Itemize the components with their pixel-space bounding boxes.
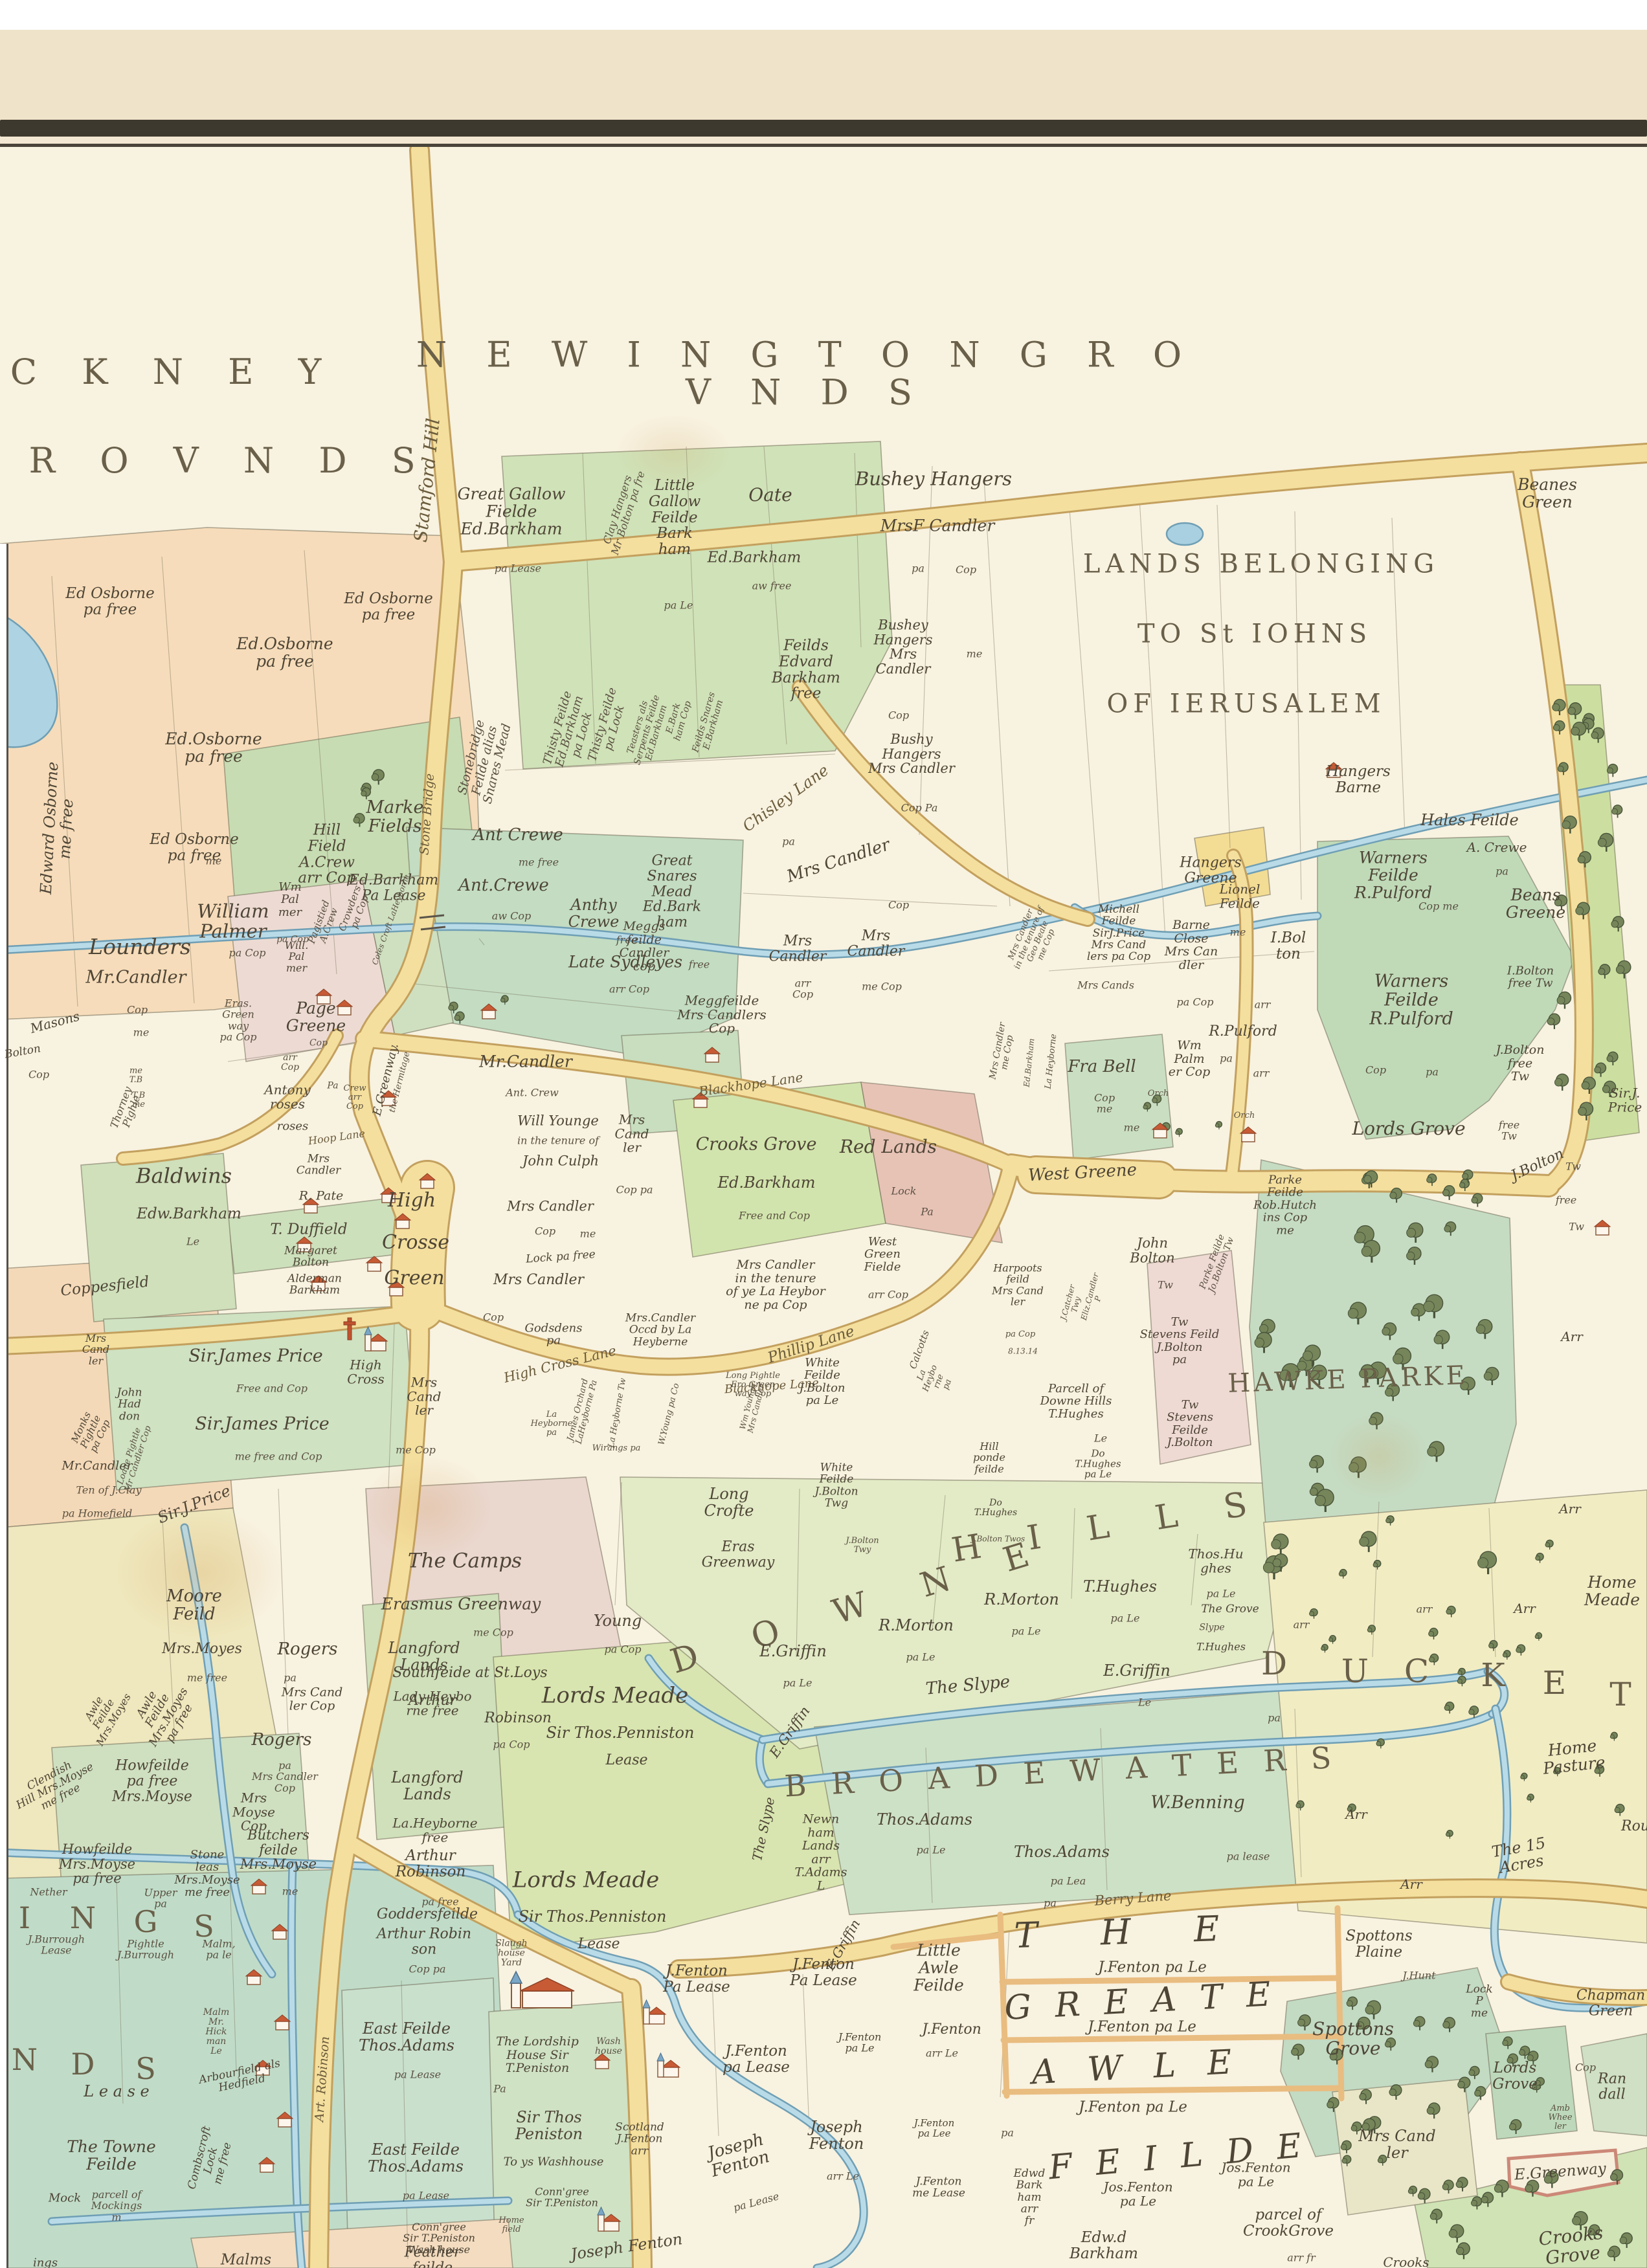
map-label: Little Gallow Feilde Bark ham [649, 478, 700, 558]
map-label: Tw Stevens Feilde J.Bolton [1167, 1399, 1213, 1449]
map-label: E.Griffin [767, 1704, 813, 1760]
label-hackney-grounds: A C K N E Y [0, 353, 338, 391]
label-newington-grounds: N E W I N G T O N G R O V N D S [386, 337, 1227, 412]
map-label: J.Fenton pa Le [1088, 2019, 1196, 2036]
map-label: Cop pa [409, 1963, 446, 1974]
map-label: pa free [421, 1896, 458, 1907]
map-label: pa Lease [403, 2190, 449, 2201]
map-label: Thisty Feilde Ed.Barkham pa Lock [541, 689, 598, 773]
map-label: East Feilde Thos.Adams [368, 2142, 464, 2175]
map-label: J.Fenton pa Lee [914, 2118, 954, 2139]
map-label: the Hermitage [388, 1051, 412, 1114]
map-label: Edw.Barkham [137, 1206, 241, 1223]
map-label: in the tenure of [517, 1135, 599, 1146]
map-label: Feilds Snares E.Barkham [691, 691, 726, 757]
map-label: Lease [577, 1937, 620, 1952]
map-label: E [1543, 1665, 1567, 1700]
map-label: Bushy Hangers Mrs Candler [868, 732, 955, 776]
map-label: Meggs feilde Candler cop [620, 920, 669, 973]
map-label: Warners Feilde R.Pulford [1369, 972, 1453, 1028]
map-label: pa Le [783, 1677, 812, 1688]
map-label: Mrs Candler [297, 1153, 341, 1177]
map-label: Marke Fields [366, 798, 424, 836]
map-label: Southfeide at St.Loys [392, 1665, 547, 1681]
map-label: arr Cop [792, 978, 813, 1001]
map-label: Cop [1365, 1064, 1386, 1075]
map-label: pa Lease [732, 2190, 780, 2213]
map-label: La Heyborne pa [531, 1410, 573, 1438]
map-label: me Cop [473, 1627, 513, 1638]
map-label: High Cross Lane [502, 1343, 618, 1385]
map-label: pa [1001, 2127, 1014, 2138]
map-label: Mr.Candler [62, 1460, 132, 1473]
map-label: Awle Feilde Mrs.Moyes [74, 1680, 133, 1748]
map-label: Arr [1400, 1878, 1422, 1892]
map-label: aw Cop [492, 910, 531, 921]
map-label: Mr.Candler [85, 968, 186, 986]
map-label: R.Morton [984, 1592, 1059, 1608]
label-the-camps: The Camps [408, 1550, 522, 1572]
map-label: Eras Greenway [702, 1539, 775, 1570]
map-label: Clendish Hill Mrs.Moyse me free [9, 1751, 102, 1823]
map-label: Eras. Green way pa Cop [220, 997, 257, 1042]
map-label: Ed.Osborne pa free [236, 635, 333, 670]
map-label: Arr [1514, 1602, 1536, 1616]
map-label: Le [186, 1236, 199, 1247]
map-label: Monks Pightle pa Cop [69, 1409, 113, 1454]
map-label: free [616, 934, 638, 945]
map-label: Blackhope Lane [724, 1377, 820, 1396]
map-label: Thos.Adams [877, 1812, 972, 1829]
map-label: Margaret Bolton [284, 1245, 337, 1269]
label-stamford-hill: Stamford Hill [411, 417, 443, 543]
map-label: Spottons Plaine [1345, 1928, 1412, 1961]
map-label: Howfeilde Mrs.Moyse pa free [59, 1842, 135, 1886]
map-label: R. Pate [299, 1190, 344, 1203]
map-label: Great Gallow Fielde Ed.Barkham [458, 485, 566, 538]
map-label: Lock [891, 1185, 917, 1196]
map-label: Malms [221, 2252, 271, 2268]
map-label: Joseph Fenton [704, 2130, 771, 2181]
map-label: arr [1417, 1603, 1433, 1614]
map-label: Great Snares Mead Ed.Bark ham [643, 854, 701, 931]
map-label: Young [594, 1613, 642, 1630]
map-label: High Cross [347, 1358, 384, 1386]
map-label: T.Hughes [1196, 1641, 1246, 1652]
map-label: Chapman Green [1576, 1988, 1645, 2019]
map-label: Do T.Hughes pa Le [1075, 1449, 1121, 1480]
map-labels-layer: A C K N E YG R O V N D SN E W I N G T O … [0, 0, 1647, 2268]
label-berry-lane: Berry Lane [1094, 1889, 1172, 1909]
map-label: The Towne Feilde [67, 2138, 156, 2173]
map-label: pa Lease [495, 562, 541, 573]
map-label: Combscroft Lock me free [186, 2125, 236, 2196]
map-label: Jos.Fenton pa Le [1103, 2180, 1172, 2208]
map-label: Conn'gree Sir T.Peniston [526, 2186, 598, 2209]
map-label: J.Bolton Twos [972, 1535, 1025, 1544]
label-the-greate-awle-feilde: T H E [1014, 1909, 1246, 1955]
map-label: Beanes Green [1518, 476, 1577, 511]
map-label: Blackhope Lane [698, 1071, 804, 1099]
map-label: La Heybo rne pa [913, 1361, 956, 1399]
map-label: Joseph Fenton [809, 2119, 864, 2153]
map-label: Mrs.Moyes [162, 1641, 242, 1657]
map-label: Teasters als Serpents Feilde Ed.Barkham [623, 691, 671, 769]
map-label: I.Bolton free Tw [1507, 965, 1554, 990]
map-label: arr [1294, 1619, 1310, 1630]
map-label: Lords Meade [513, 1869, 659, 1893]
map-label: Lease [605, 1753, 647, 1768]
map-label: T.B me [132, 1091, 145, 1109]
map-label: Bushey Hangers Mrs Candler [873, 618, 932, 677]
map-label: pa [782, 836, 795, 847]
map-label: The Slype [750, 1796, 778, 1863]
map-label: Coppesfield [60, 1274, 150, 1299]
map-label: Clay Hangers Mr Bolton pa fre [599, 466, 647, 556]
map-label: ings [33, 2256, 58, 2268]
map-label: me Cop [396, 1444, 436, 1455]
map-label: free [689, 959, 710, 970]
map-label: Phillip Lane [766, 1324, 857, 1367]
map-label: Edward Osborne me free [38, 761, 78, 896]
map-label: pa [1496, 865, 1508, 876]
map-label: La Heyborne Tw [607, 1377, 629, 1449]
map-label: Rogers [251, 1731, 311, 1749]
label-west-greene: West Greene [1027, 1161, 1137, 1185]
map-label: Ed.Barkham [718, 1175, 816, 1192]
map-label: Wm Younge Mrs Candler [738, 1382, 767, 1434]
map-label: Sir.James Price [195, 1414, 329, 1433]
map-label: Will. Pal mer [285, 940, 309, 973]
map-label: OF IERUSALEM [1106, 690, 1385, 718]
map-label: W.Young pa Co [657, 1383, 681, 1446]
map-label: J.Bolton free Tw [1496, 1043, 1545, 1084]
map-label: Crowders pa Cop [337, 884, 373, 936]
map-label: T.Hughes [1083, 1579, 1157, 1595]
map-label: pa Le [664, 599, 693, 610]
map-label: J.Fenton [922, 2022, 981, 2038]
map-label: Nether [30, 1886, 67, 1897]
map-label: Calcotts [908, 1329, 932, 1370]
map-label: J.Fenton Pa Lease [663, 1963, 730, 1996]
map-label: Parke Feilde Jo.Bolton Tw [1198, 1233, 1236, 1295]
map-label: Free and Cop [236, 1383, 308, 1394]
map-label: Mrs Candler [847, 928, 905, 959]
map-label: Home field [499, 2216, 524, 2234]
map-label: Coles Croft LaHeyborne [371, 873, 412, 966]
map-label: Feather feilde [405, 2245, 461, 2268]
map-label: arr Le [926, 2047, 958, 2058]
map-label: pa Mrs Candler Cop [252, 1760, 318, 1794]
map-label: Arthur [409, 1693, 456, 1709]
map-label: Jos.Fenton pa Le [1221, 2161, 1290, 2188]
map-label: arr Cop [609, 983, 649, 994]
map-label: pa Le [1012, 1625, 1041, 1636]
map-label: me free [187, 1672, 227, 1683]
map-label: Joseph Fenton [570, 2231, 684, 2263]
map-label: Bushey Hangers [855, 469, 1012, 489]
map-label: Lionel Feilde [1220, 882, 1260, 910]
map-label: Mrs Cand ler [615, 1113, 649, 1155]
map-label: Tw [1569, 1221, 1584, 1232]
map-label: Sir.J. Price [1608, 1086, 1642, 1114]
map-label: The Lordship House Sir T.Peniston [496, 2035, 579, 2075]
map-label: Antony roses [264, 1083, 311, 1111]
map-label: J.Fenton me Lease [912, 2176, 965, 2200]
label-chisley-lane: Chisley Lane [740, 762, 832, 835]
map-label: Sir.James Price [188, 1346, 322, 1365]
map-label: pa Cop [493, 1739, 530, 1750]
map-label: Slaugh house Yard [495, 1939, 527, 1968]
map-label: The Grove [1201, 1603, 1259, 1615]
map-label: pa lease [1227, 1851, 1270, 1862]
map-label: Lock P me [1466, 1983, 1492, 2019]
map-label: Le [1138, 1696, 1151, 1707]
label-the-slype: The Slype [925, 1673, 1011, 1698]
map-label: Goddersfeilde [377, 1907, 478, 1922]
map-label: Sir Thos.Penniston [519, 1909, 667, 1926]
map-label: pa [1268, 1712, 1281, 1723]
map-label: pa Lea [1051, 1875, 1086, 1886]
map-label: Little Awle Feilde [913, 1942, 964, 1994]
map-label: Ant. Crew [506, 1087, 559, 1098]
label-baldwins: Baldwins [136, 1165, 232, 1188]
map-label: Pa [493, 2083, 506, 2094]
map-label: Mock [49, 2192, 81, 2204]
map-label: aw free [752, 580, 792, 591]
map-label: J.Fenton pa Le [1079, 2100, 1187, 2116]
map-label: arr [1253, 1067, 1270, 1078]
map-label: Rou [1621, 1819, 1647, 1834]
map-label: Mrs Candler [493, 1273, 584, 1288]
map-label: E.Griffin [1103, 1663, 1171, 1680]
map-label: Edwd Bark ham arr fr [1014, 2168, 1046, 2227]
map-label: parcel of CrookGrove [1243, 2207, 1334, 2240]
map-label: Rogers [277, 1640, 337, 1658]
map-label: Mrs Candler [769, 933, 827, 964]
map-label: Mrs Cand ler [1358, 2128, 1435, 2162]
map-label: Arr [1561, 1330, 1583, 1344]
map-label: Ed Osborne pa free [150, 832, 238, 864]
map-label: N [12, 2044, 38, 2076]
map-label: N [70, 1902, 96, 1935]
map-label: Cop me [1094, 1093, 1115, 1115]
map-label: Conn'gree Sir T.Peniston Wash house [403, 2221, 475, 2255]
map-label: pa Le [1207, 1588, 1236, 1599]
map-label: John Culph [522, 1154, 599, 1169]
map-label: Bolton [4, 1043, 42, 1061]
map-label: White Feilde J.Bolton Twg [814, 1462, 858, 1509]
map-label: Hill ponde feilde [973, 1441, 1005, 1474]
map-label: Ten of J.Clay [76, 1484, 141, 1495]
map-label: roses [277, 1120, 309, 1132]
map-label: E.Griffin [823, 1917, 863, 1973]
label-st-johns-lands: LANDS BELONGING [1083, 550, 1439, 578]
map-label: Pa [327, 1081, 338, 1091]
map-label: Mrs Cands [1077, 979, 1134, 990]
map-label: Stone Bridge [418, 773, 436, 855]
map-label: High [388, 1190, 436, 1211]
map-label: Green [384, 1268, 444, 1289]
map-label: pa Cop [1177, 996, 1214, 1007]
map-label: Arthur Robin son [377, 1926, 471, 1957]
map-label: F E I L D E [1048, 2128, 1310, 2186]
map-label: pa [1044, 1897, 1057, 1908]
label-kings-lands: I [19, 1902, 30, 1935]
map-label: L e a s e [84, 2084, 149, 2100]
map-label: Anthy Crewe [568, 897, 620, 931]
map-label: E.Griffin [759, 1643, 827, 1660]
map-label: Ed Osborne pa free [344, 591, 432, 623]
map-label: me [580, 1228, 596, 1239]
map-label: me [967, 648, 983, 659]
map-label: C [1404, 1654, 1429, 1689]
map-label: Sir.J.Price [155, 1483, 233, 1528]
map-label: John Bolton [1130, 1236, 1174, 1265]
map-label: me [282, 1885, 298, 1896]
map-label: Oate [748, 485, 792, 505]
map-label: TO St IOHNS [1137, 620, 1372, 648]
map-label: me [206, 855, 222, 866]
map-label: The 15 Acres [1490, 1835, 1550, 1878]
map-label: Lords Grove [1492, 2060, 1538, 2093]
map-label: Meggfeilde Mrs Candlers Cop [677, 994, 767, 1036]
map-label: Lady Heybo rne free [393, 1689, 471, 1717]
map-label: Mrs Moyse Cop [232, 1792, 275, 1834]
map-label: Malm Mr. Hick man Le [203, 2008, 229, 2057]
map-label: Cop [28, 1069, 49, 1080]
map-label: Scotland J.Fenton arr [615, 2121, 664, 2157]
map-label: Arbourfield als Hedfield [198, 2058, 284, 2098]
map-label: Langford Lands [391, 1770, 463, 1803]
map-label: pa Lease [394, 2069, 441, 2080]
map-label: La.Heyborne free [392, 1816, 477, 1844]
map-label: Hangers Barne [1326, 764, 1391, 796]
map-label: Masons [29, 1009, 82, 1036]
map-label: Parcell of Downe Hills T.Hughes [1040, 1383, 1112, 1420]
map-label: J.Burrough Lease [28, 1934, 85, 1957]
map-label: Thos.Adams [1014, 1844, 1110, 1861]
map-label: Amb Whee ler [1548, 2104, 1572, 2131]
map-label: Michell Feilde SirJ.Price Mrs Cand lers … [1087, 904, 1150, 963]
label-lounders: Lounders [89, 935, 191, 959]
map-label: To ys Washhouse [504, 2155, 604, 2168]
map-label: pa Homefield [62, 1507, 133, 1518]
map-label: R.Pulford [1209, 1024, 1277, 1039]
map-label: W.Benning [1150, 1793, 1245, 1812]
map-label: me [1124, 1122, 1140, 1133]
label-downe-hills: D O W N E [666, 1530, 1055, 1680]
map-label: White Feilde J.Bolton pa Le [799, 1357, 845, 1407]
map-label: Pa [921, 1206, 934, 1217]
map-label: D [71, 2049, 95, 2081]
map-label: Mrs Candler [507, 1199, 594, 1214]
map-label: Stone leas Mrs.Moyse me free [174, 1849, 240, 1899]
map-label: Mrs Cand ler [82, 1333, 109, 1366]
map-label: Newn ham Lands arr T.Adams L [795, 1812, 847, 1892]
map-label: S [194, 1911, 214, 1943]
map-label: pa Cop [1005, 1330, 1035, 1339]
map-label: Eliz.Candler P [1080, 1272, 1108, 1323]
map-label: West Green Fielde [864, 1236, 901, 1273]
map-label: me T.B [129, 1067, 142, 1085]
map-label: Slype [1199, 1623, 1224, 1632]
map-label: Godsdens pa [525, 1322, 583, 1348]
map-label: Cop [888, 899, 909, 910]
map-label: free [1556, 1194, 1577, 1205]
map-label: Mr.Candler [479, 1053, 572, 1071]
map-label: Parke Feilde Rob.Hutch ins Cop me [1253, 1173, 1317, 1236]
map-label: Wm Pal mer [278, 881, 302, 918]
map-label: La Heyborne [1044, 1034, 1059, 1089]
map-label: Crooks [1383, 2256, 1429, 2268]
map-label: S [135, 2053, 156, 2085]
map-label: pa Cop [229, 947, 266, 958]
map-label: I.Bol ton [1271, 930, 1306, 962]
map-label: Thisty Feilde pa Lock [586, 686, 631, 766]
map-label: pa Le [906, 1651, 936, 1662]
map-label: Ed Osborne pa free [65, 586, 154, 618]
map-label: Cop [127, 1004, 148, 1015]
map-label: Mrs Cand ler [407, 1376, 442, 1418]
map-label: Warners Feilde R.Pulford [1354, 849, 1432, 902]
map-label: Tw [1158, 1279, 1173, 1290]
map-label: me [1230, 926, 1246, 937]
map-label: Ed.Osborne pa free [165, 730, 262, 765]
map-label: Hill Field A.Crew arr Cop [298, 822, 355, 886]
map-label: Thorney Pighle [108, 1085, 144, 1134]
map-label: Wash house [595, 2037, 622, 2056]
map-label: Hangers Greene [1180, 855, 1241, 886]
label-hawke-parke: HAWKE PARKE [1227, 1362, 1469, 1398]
map-label: Art. Robinson [313, 2036, 332, 2122]
map-label: Arr [1559, 1502, 1581, 1517]
map-label: J.Bolton Twy [846, 1537, 879, 1555]
map-label: me Cop [862, 981, 902, 992]
map-label: Cop [535, 1225, 555, 1236]
map-label: Crew arr Cop [344, 1084, 366, 1111]
map-label: Langford Lands [388, 1640, 460, 1674]
map-label: Mrs Candler [785, 836, 892, 886]
map-label: Pightle J.Burrough [117, 1939, 174, 1961]
map-label: Cop [956, 564, 976, 575]
map-label: Late Sydleyes [568, 953, 682, 971]
map-label: Moore Feild [166, 1587, 222, 1623]
map-label: U [1341, 1654, 1369, 1689]
map-label: J.Fenton Pa Lease [790, 1957, 857, 1989]
map-label: T [1609, 1677, 1631, 1712]
map-label: arr [1255, 999, 1271, 1010]
map-label: Fra Bell [1068, 1058, 1136, 1076]
map-label: Do T.Hughes [974, 1498, 1017, 1518]
map-label: Cop pa [616, 1184, 653, 1195]
label-ducket: D [1261, 1646, 1287, 1681]
map-label: Home Meade [1584, 1573, 1640, 1608]
map-label: J.Fenton pa Le [1098, 1960, 1207, 1976]
map-label: Cop me [1418, 900, 1459, 911]
map-label: Hoop Lane [308, 1128, 366, 1146]
label-lords-grove-upper: Lords Grove [1352, 1119, 1465, 1139]
map-label: Mrs Candler in the tenure of ye La Heybo… [726, 1258, 825, 1311]
map-label: Cop [483, 1311, 504, 1322]
map-label: J.Fenton pa Le [838, 2032, 882, 2054]
map-label: G [134, 1906, 158, 1939]
label-lords-meade: Lords Meade [542, 1684, 688, 1708]
map-label: Mrs Candler in the tenure of Geo Beale m… [1005, 902, 1063, 977]
map-label: free Tw [1499, 1120, 1520, 1142]
map-label: E.Bark ham Cop [664, 697, 693, 742]
map-label: Tw [1565, 1161, 1581, 1172]
